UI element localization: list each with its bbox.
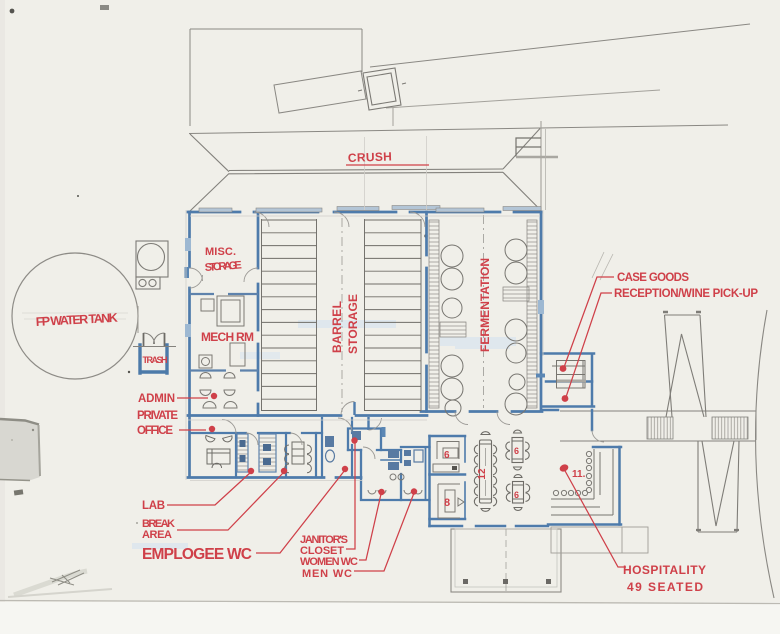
svg-text:MECH RM: MECH RM (201, 330, 254, 344)
svg-text:CASE GOODS: CASE GOODS (617, 272, 689, 284)
svg-text:MISC.: MISC. (205, 246, 236, 258)
svg-text:ADMIN: ADMIN (138, 393, 175, 405)
svg-text:6: 6 (514, 490, 519, 500)
svg-text:STORAGE: STORAGE (346, 294, 360, 354)
svg-text:AREA: AREA (142, 529, 172, 541)
svg-text:OFFICE: OFFICE (137, 425, 173, 437)
svg-text:FERMENTATION: FERMENTATION (478, 258, 492, 352)
svg-text:LAB: LAB (142, 500, 165, 512)
svg-text:8: 8 (444, 497, 450, 509)
svg-text:49 SEATED: 49 SEATED (627, 580, 703, 594)
svg-text:6: 6 (444, 450, 450, 461)
svg-text:TRASH: TRASH (143, 355, 168, 365)
svg-text:CRUSH: CRUSH (348, 149, 392, 165)
svg-text:PRIVATE: PRIVATE (137, 410, 178, 422)
svg-text:12: 12 (477, 468, 488, 480)
svg-text:RECEPTION/WINE PICK-UP: RECEPTION/WINE PICK-UP (614, 288, 758, 300)
svg-text:11.: 11. (572, 469, 586, 480)
svg-text:WOMEN WC: WOMEN WC (300, 556, 358, 568)
svg-text:BARREL: BARREL (330, 301, 344, 353)
svg-text:EMPLOGEE WC: EMPLOGEE WC (142, 546, 252, 563)
svg-text:MEN WC: MEN WC (302, 568, 352, 580)
svg-text:6: 6 (514, 446, 519, 456)
svg-text:HOSPITALITY: HOSPITALITY (623, 563, 706, 577)
